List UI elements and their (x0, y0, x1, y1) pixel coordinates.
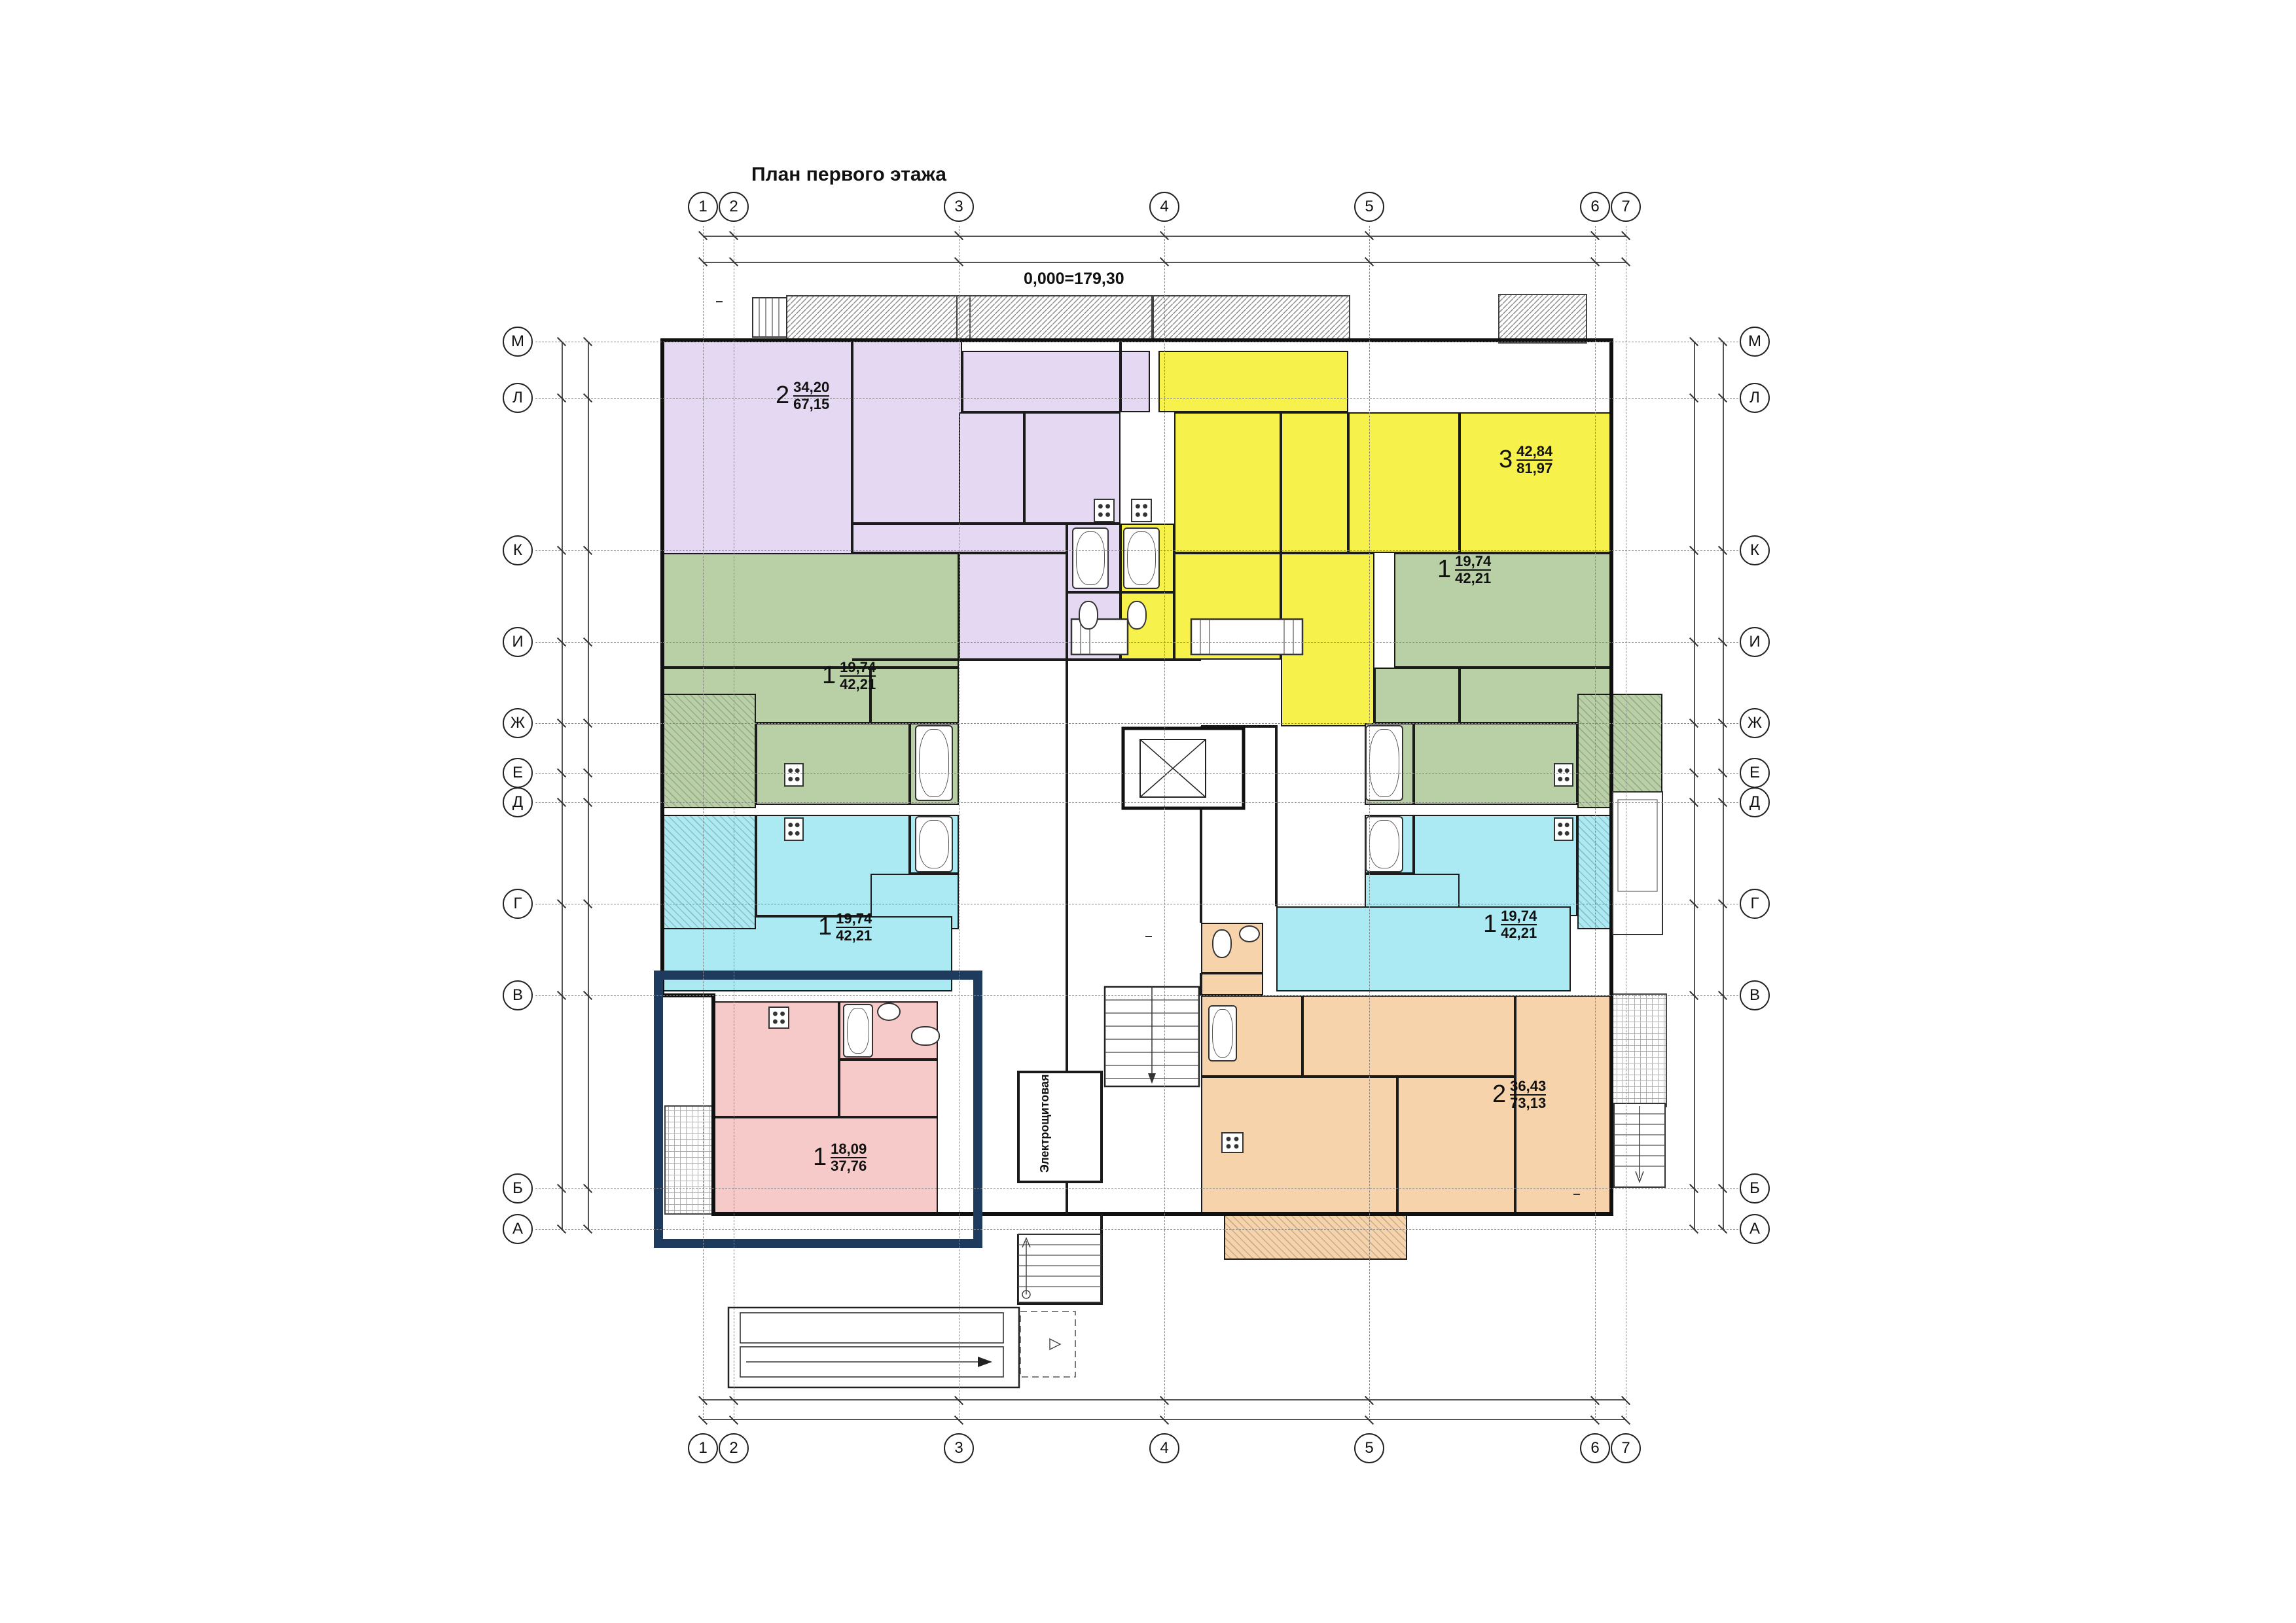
fixture-icon (877, 1003, 901, 1021)
level-mark (716, 301, 723, 302)
axis-bubble: М (503, 327, 533, 357)
apartment-label: 2 34,20 67,15 (776, 380, 829, 412)
area-fraction: 19,74 42,21 (840, 660, 876, 692)
living-area: 19,74 (840, 660, 876, 677)
fixture-icon (1365, 816, 1403, 872)
rooms-count: 1 (822, 662, 836, 690)
terrace-hatch (665, 1106, 713, 1214)
fixture-icon (843, 1004, 873, 1058)
axis-bubble: Е (503, 758, 533, 788)
rooms-count: 2 (776, 382, 789, 410)
axis-bubble: В (1740, 980, 1770, 1010)
area-fraction: 18,09 37,76 (831, 1141, 867, 1174)
total-area: 42,21 (1455, 571, 1491, 586)
area-fraction: 19,74 42,21 (836, 911, 872, 944)
axis-bubble: И (1740, 627, 1770, 657)
apartment-label: 2 36,43 73,13 (1492, 1079, 1546, 1111)
fixture-icon (1554, 763, 1573, 787)
apartment-label: 3 42,84 81,97 (1499, 444, 1552, 476)
balcony-hatch (957, 296, 1152, 339)
stair-exterior-nw (753, 298, 787, 337)
level-mark (1573, 1194, 1580, 1195)
axis-bubble: 1 (688, 1433, 718, 1463)
axis-bubble: 6 (1580, 1433, 1610, 1463)
axis-line (1369, 226, 1370, 1418)
stair-exterior-se (1614, 1103, 1665, 1187)
fixture-icon (768, 1007, 789, 1029)
axis-bubble: В (503, 980, 533, 1010)
rooms-count: 1 (813, 1143, 827, 1171)
fixture-icon (1212, 929, 1232, 958)
apartment-label: 1 19,74 42,21 (822, 660, 876, 692)
living-area: 19,74 (1501, 908, 1537, 925)
axis-line (535, 904, 1738, 904)
area-fraction: 34,20 67,15 (793, 380, 829, 412)
rooms-count: 1 (1483, 910, 1497, 938)
apartment-label: 1 19,74 42,21 (818, 911, 872, 944)
axis-bubble: Ж (1740, 708, 1770, 738)
living-area: 19,74 (836, 911, 872, 928)
fixture-icon (1208, 1005, 1237, 1061)
axis-line (703, 226, 704, 1418)
fixture-icon (1127, 601, 1147, 630)
fixture-icon (1094, 499, 1115, 522)
fixture-icon (1131, 499, 1152, 522)
axis-bubble: А (503, 1214, 533, 1244)
axis-bubble: К (1740, 535, 1770, 565)
total-area: 73,13 (1510, 1096, 1546, 1111)
fixture-icon (784, 817, 804, 841)
terrace-hatch (1611, 994, 1666, 1107)
axis-bubble: 1 (688, 192, 718, 222)
fixture-icon (1221, 1132, 1244, 1153)
balcony-hatch (1499, 294, 1587, 343)
rooms-count: 2 (1492, 1080, 1506, 1109)
total-area: 42,21 (836, 928, 872, 944)
apartment-label: 1 18,09 37,76 (813, 1141, 867, 1174)
living-area: 34,20 (793, 380, 829, 397)
axis-bubble: 5 (1354, 192, 1384, 222)
fixture-icon (784, 763, 804, 787)
axis-line (1626, 226, 1626, 1418)
total-area: 67,15 (793, 397, 829, 412)
rooms-count: 3 (1499, 446, 1513, 474)
axis-bubble: И (503, 627, 533, 657)
axis-line (535, 723, 1738, 724)
living-area: 42,84 (1516, 444, 1552, 461)
floor-plan-canvas: План первого этажа 0,000=179,30 (0, 0, 2296, 1623)
axis-line (535, 550, 1738, 551)
axis-bubble: 2 (719, 1433, 749, 1463)
axis-line (535, 642, 1738, 643)
balcony-hatch (1153, 296, 1350, 339)
fixture-icon (1239, 925, 1260, 942)
axis-bubble: 3 (944, 1433, 974, 1463)
fixture-icon (1072, 527, 1109, 589)
total-area: 42,21 (1501, 925, 1537, 941)
apartment-label: 1 19,74 42,21 (1437, 554, 1491, 586)
axis-line (1595, 226, 1596, 1418)
axis-line (535, 773, 1738, 774)
living-area: 18,09 (831, 1141, 867, 1158)
dim-rail (1694, 342, 1695, 1229)
axis-line (1164, 226, 1165, 1418)
living-area: 19,74 (1455, 554, 1491, 571)
axis-bubble: Б (503, 1173, 533, 1204)
fixture-icon (911, 1026, 940, 1046)
axis-bubble: 7 (1611, 192, 1641, 222)
porch-north (1071, 619, 1302, 654)
porch-east (1613, 792, 1662, 935)
fixture-icon (1079, 601, 1098, 630)
living-area: 36,43 (1510, 1079, 1546, 1096)
axis-line (535, 995, 1738, 996)
linework-layer (0, 0, 2296, 1623)
axis-bubble: Г (503, 889, 533, 919)
stair-exterior-south (1018, 1234, 1101, 1302)
ramps (728, 1308, 1075, 1387)
axis-bubble: Д (1740, 787, 1770, 817)
stair-main (1105, 987, 1199, 1086)
axis-bubble: 2 (719, 192, 749, 222)
axis-bubble: Л (503, 383, 533, 413)
axis-bubble: М (1740, 327, 1770, 357)
apartment-label: 1 19,74 42,21 (1483, 908, 1537, 941)
area-fraction: 42,84 81,97 (1516, 444, 1552, 476)
axis-line (734, 226, 734, 1418)
axis-bubble: 5 (1354, 1433, 1384, 1463)
axis-bubble: Г (1740, 889, 1770, 919)
axis-bubble: Е (1740, 758, 1770, 788)
electrical-room-label: Электрощитовая (1038, 1074, 1052, 1173)
axis-bubble: Д (503, 787, 533, 817)
total-area: 42,21 (840, 677, 876, 692)
axis-line (535, 1188, 1738, 1189)
dim-rail (588, 342, 589, 1229)
axis-line (959, 226, 960, 1418)
rooms-count: 1 (818, 913, 832, 941)
dim-rail (562, 342, 563, 1229)
level-mark (1145, 936, 1152, 937)
axis-bubble: А (1740, 1214, 1770, 1244)
rooms-count: 1 (1437, 556, 1451, 584)
axis-bubble: 6 (1580, 192, 1610, 222)
area-fraction: 19,74 42,21 (1501, 908, 1537, 941)
area-fraction: 36,43 73,13 (1510, 1079, 1546, 1111)
axis-bubble: Б (1740, 1173, 1770, 1204)
total-area: 37,76 (831, 1158, 867, 1174)
axis-bubble: 3 (944, 192, 974, 222)
axis-bubble: Ж (503, 708, 533, 738)
axis-bubble: 7 (1611, 1433, 1641, 1463)
area-fraction: 19,74 42,21 (1455, 554, 1491, 586)
axis-line (535, 398, 1738, 399)
balcony-hatch (787, 296, 970, 339)
fixture-icon (915, 725, 953, 801)
axis-line (535, 1229, 1738, 1230)
elevator (1123, 728, 1244, 808)
fixture-icon (915, 816, 953, 872)
electrical-room (1018, 1072, 1102, 1182)
total-area: 81,97 (1516, 461, 1552, 476)
fixture-icon (1365, 725, 1403, 801)
axis-bubble: 4 (1149, 192, 1179, 222)
fixture-icon (1123, 527, 1160, 589)
fixture-icon (1554, 817, 1573, 841)
axis-line (535, 802, 1738, 803)
dim-rail (1723, 342, 1724, 1229)
axis-line (535, 342, 1738, 342)
axis-bubble: 4 (1149, 1433, 1179, 1463)
axis-bubble: Л (1740, 383, 1770, 413)
axis-bubble: К (503, 535, 533, 565)
